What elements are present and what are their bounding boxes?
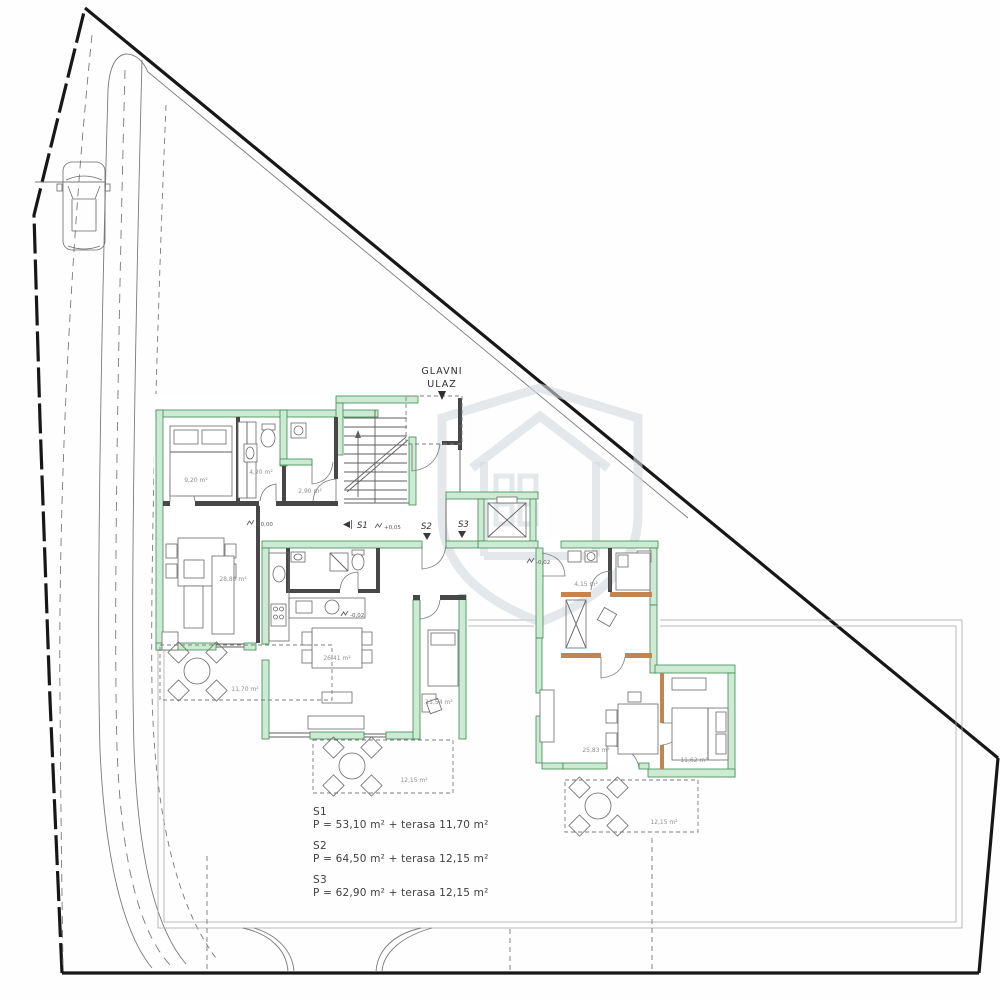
elevation-hall: ±0,00: [256, 522, 273, 528]
elevation-s2: -0,02: [350, 613, 364, 619]
site-plan-page: GLAVNI ULAZ S1 S2 S3 ±0,00 +0,05 -0,02 -…: [0, 0, 1000, 1000]
area-s2-terrace: 12,15 m²: [400, 777, 428, 784]
area-s3-living: 25,83 m²: [582, 747, 610, 754]
unit-marker-s3: S3: [458, 520, 469, 530]
area-s3-bath: 4,15 m²: [574, 581, 598, 588]
area-s3-bedroom: 11,62 m²: [680, 757, 708, 764]
elevation-s3: -0,02: [536, 560, 550, 566]
area-s1-living: 28,80 m²: [219, 576, 247, 583]
car-icon: [57, 162, 110, 250]
terrace-s2: [313, 737, 453, 796]
area-s3-terrace: 12,15 m²: [650, 819, 678, 826]
apartment-legend: S1 P = 53,10 m² + terasa 11,70 m² S2 P =…: [313, 806, 553, 908]
legend-item-s2: S2 P = 64,50 m² + terasa 12,15 m²: [313, 840, 553, 865]
unit-marker-s2: S2: [421, 522, 432, 532]
legend-item-s3: S3 P = 62,90 m² + terasa 12,15 m²: [313, 874, 553, 899]
legend-id-s1: S1: [313, 806, 553, 818]
legend-area-s1: P = 53,10 m² + terasa 11,70 m²: [313, 819, 553, 831]
elevation-stairs: +0,05: [384, 525, 401, 531]
area-s2-bedroom: 11,54 m²: [425, 699, 453, 706]
area-s1-hall: 2,90 m²: [298, 488, 322, 495]
area-s1-terrace: 11,70 m²: [231, 686, 259, 693]
legend-id-s3: S3: [313, 874, 553, 886]
legend-area-s2: P = 64,50 m² + terasa 12,15 m²: [313, 853, 553, 865]
entrance-label-line2: ULAZ: [427, 379, 456, 390]
area-s2-living: 26,41 m²: [323, 655, 351, 662]
entrance-label-line1: GLAVNI: [421, 366, 462, 377]
legend-area-s3: P = 62,90 m² + terasa 12,15 m²: [313, 887, 553, 899]
legend-id-s2: S2: [313, 840, 553, 852]
legend-item-s1: S1 P = 53,10 m² + terasa 11,70 m²: [313, 806, 553, 831]
terrace-s3: [565, 777, 698, 836]
unit-marker-s1: S1: [357, 521, 368, 531]
area-s1-bath: 4,20 m²: [249, 469, 273, 476]
area-s1-bedroom: 9,20 m²: [184, 477, 208, 484]
